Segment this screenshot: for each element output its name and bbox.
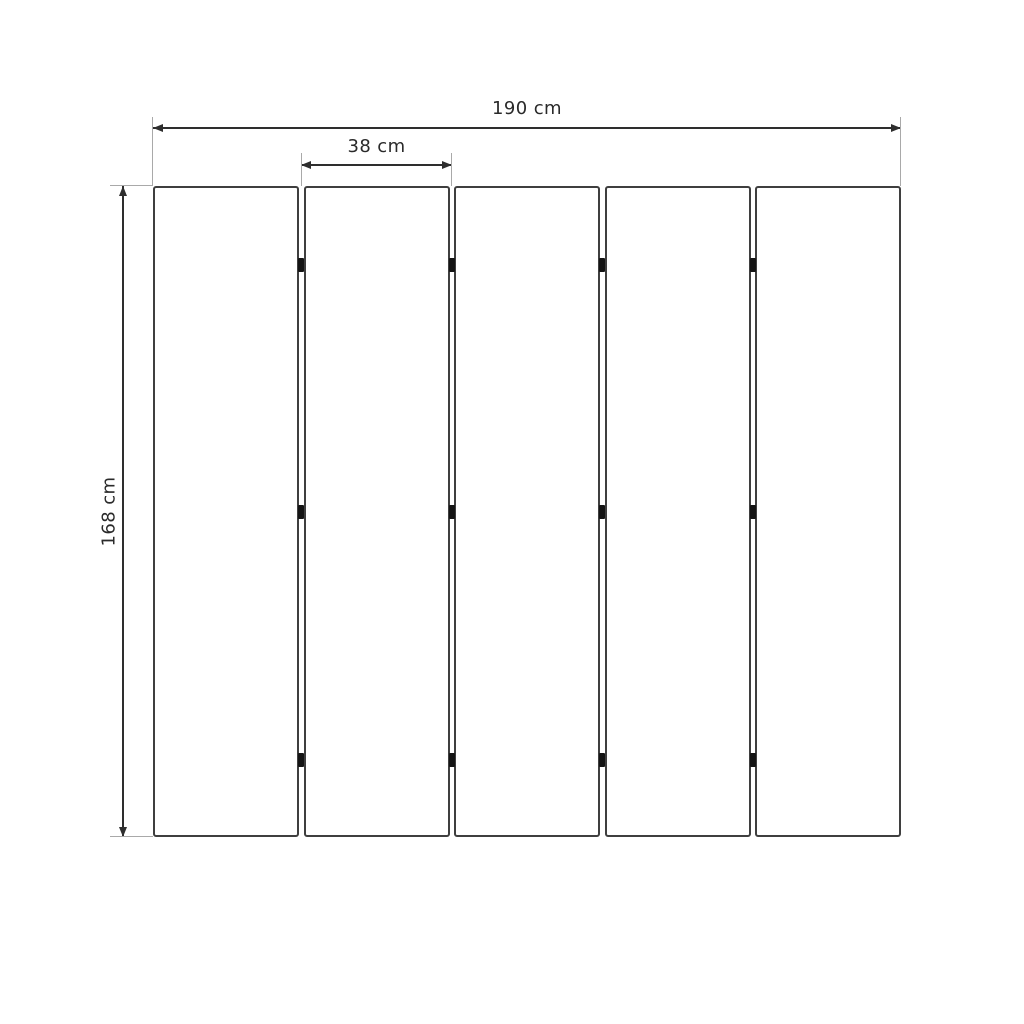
panel-connector [599,753,605,767]
panel-connector [449,505,455,519]
total-width-dimension-line [153,127,901,129]
panel-width-dimension-line [301,164,452,166]
panel-connector [750,258,756,272]
panel-dimension-drawing: 190 cm 38 cm 168 cm [0,0,1024,1024]
extension-line [152,117,153,186]
panel [153,186,299,837]
height-dimension-line [122,186,124,837]
arrow-left-icon [301,161,311,169]
panel-connector [298,753,304,767]
panel-connector [298,258,304,272]
panel-connector [298,505,304,519]
panel-connector [750,753,756,767]
arrow-up-icon [119,186,127,196]
panel-connector [599,505,605,519]
extension-line [110,185,153,186]
extension-line [451,153,452,186]
arrow-left-icon [153,124,163,132]
panel [454,186,600,837]
extension-line [110,836,153,837]
panel [605,186,751,837]
extension-line [301,153,302,186]
panel-connector [449,753,455,767]
height-label: 168 cm [99,477,120,547]
panel-width-label: 38 cm [301,136,452,157]
panel-connector [750,505,756,519]
panel-connector [599,258,605,272]
panel-connector [449,258,455,272]
total-width-label: 190 cm [153,98,901,119]
extension-line [900,117,901,186]
panel [304,186,450,837]
panel [755,186,901,837]
